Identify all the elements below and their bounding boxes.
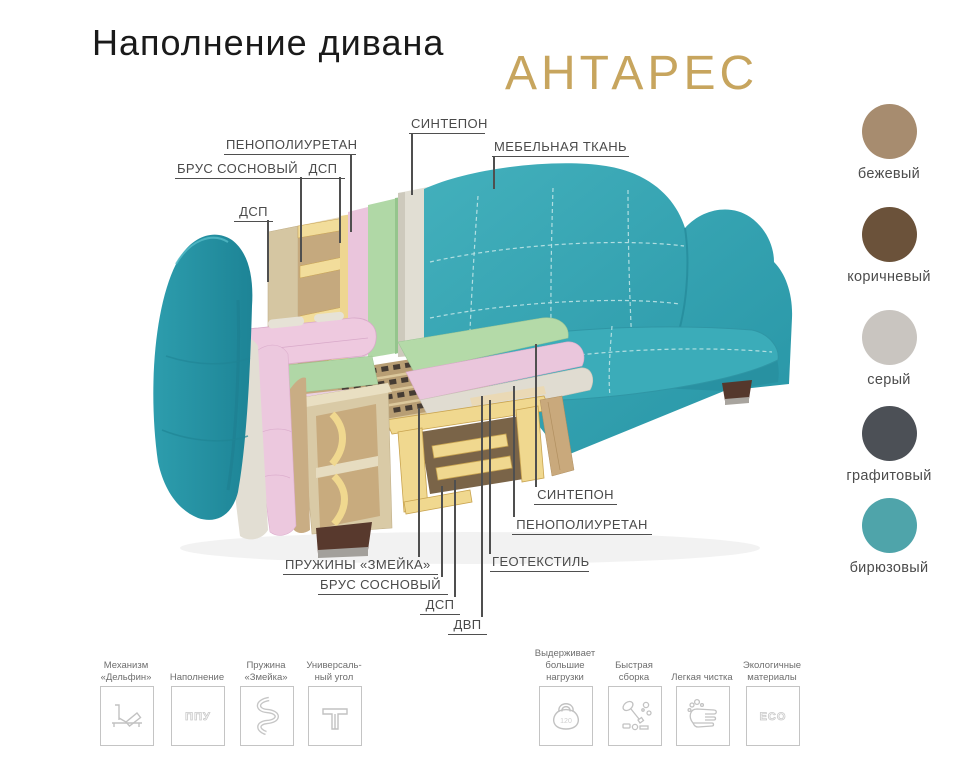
eco-materials-icon: ECO <box>753 696 793 736</box>
swatch-circle-graphite <box>862 406 917 461</box>
leader-line-penopoliuretan-right <box>513 386 515 517</box>
svg-text:ECO: ECO <box>760 711 787 723</box>
leader-line-brus-sosnovy-top <box>300 177 302 262</box>
feature-eco-materials: Экологичные материалы ECO <box>746 650 798 746</box>
feature-snake-spring: Пружина «Змейка» <box>240 650 292 746</box>
fabric-swatch-brown: коричневый <box>843 207 935 285</box>
swatch-circle-turquoise <box>862 498 917 553</box>
callout-dsp-bottom: ДСП <box>420 597 460 615</box>
feature-dolphin-mechanism: Механизм «Дельфин» <box>100 650 152 746</box>
callout-penopoliuretan-top: ПЕНОПОЛИУРЕТАН <box>224 137 356 155</box>
callout-dsp-left: ДСП <box>234 204 273 222</box>
sofa-bed-mechanism-icon <box>107 696 147 736</box>
callout-dvp: ДВП <box>448 617 487 635</box>
swatch-label: бирюзовый <box>843 560 935 576</box>
swatch-label: бежевый <box>843 166 935 182</box>
leader-line-sintepon-top <box>411 133 413 195</box>
feature-ppu-filling: Наполнение ППУ <box>171 650 223 746</box>
feature-caption: Экологичные материалы <box>730 650 814 684</box>
swatch-circle-brown <box>862 207 917 262</box>
callout-dsp-top: ДСП <box>301 161 345 179</box>
feature-easy-cleaning: Легкая чистка <box>676 650 728 746</box>
callout-sintepon-right: СИНТЕПОН <box>534 487 617 505</box>
leader-line-brus-sosnovy-bottom <box>441 486 443 577</box>
swatch-label: серый <box>843 372 935 388</box>
swatch-label: графитовый <box>843 468 935 484</box>
callout-geotekstil: ГЕОТЕКСТИЛЬ <box>490 554 589 572</box>
feature-quick-assembly: Быстрая сборка <box>608 650 660 746</box>
callout-penopoliuretan-right: ПЕНОПОЛИУРЕТАН <box>512 517 652 535</box>
callout-pruzhiny-zmeika: ПРУЖИНЫ «ЗМЕЙКА» <box>283 557 438 575</box>
feature-heavy-load: Выдерживает большие нагрузки 120 <box>539 650 591 746</box>
universal-corner-icon <box>315 696 355 736</box>
swatch-circle-beige <box>862 104 917 159</box>
leader-line-dsp-left <box>267 220 269 282</box>
kettlebell-icon: 120 <box>546 696 586 736</box>
callout-sintepon-top: СИНТЕПОН <box>409 116 485 134</box>
leader-line-sintepon-right <box>535 344 537 487</box>
ground-shadow <box>180 532 760 564</box>
backrest-batting-white <box>398 187 428 357</box>
snake-spring-icon <box>247 696 287 736</box>
armrest-dsp-box <box>300 383 392 558</box>
svg-text:120: 120 <box>560 718 572 725</box>
leader-line-mebelnaya-tkan <box>493 156 495 189</box>
swatch-label: коричневый <box>843 269 935 285</box>
feature-caption: Универсаль- ный угол <box>292 650 376 684</box>
leader-line-dsp-bottom <box>454 480 456 597</box>
svg-text:ППУ: ППУ <box>185 711 211 723</box>
armrest-fabric <box>153 235 252 520</box>
leader-line-geotekstil <box>489 400 491 554</box>
swatch-circle-gray <box>862 310 917 365</box>
callout-mebelnaya-tkan: МЕБЕЛЬНАЯ ТКАНЬ <box>492 139 629 157</box>
leader-line-penopoliuretan-top <box>350 154 352 232</box>
easy-cleaning-icon <box>683 696 723 736</box>
leader-line-pruzhiny-zmeika <box>418 408 420 557</box>
leader-line-dsp-top <box>339 177 341 243</box>
callout-brus-sosnovy-top: БРУС СОСНОВЫЙ <box>175 161 306 179</box>
sofa-foot-right <box>722 380 752 405</box>
fabric-swatch-gray: серый <box>843 310 935 388</box>
fabric-swatch-beige: бежевый <box>843 104 935 182</box>
fabric-swatch-turquoise: бирюзовый <box>843 498 935 576</box>
ppu-filling-icon: ППУ <box>178 696 218 736</box>
infographic-page: Наполнение дивана АНТАРЕС <box>0 0 958 774</box>
fabric-swatch-graphite: графитовый <box>843 406 935 484</box>
leader-line-dvp <box>481 396 483 617</box>
feature-universal-corner: Универсаль- ный угол <box>308 650 360 746</box>
callout-brus-sosnovy-bottom: БРУС СОСНОВЫЙ <box>318 577 448 595</box>
quick-assembly-icon <box>615 696 655 736</box>
